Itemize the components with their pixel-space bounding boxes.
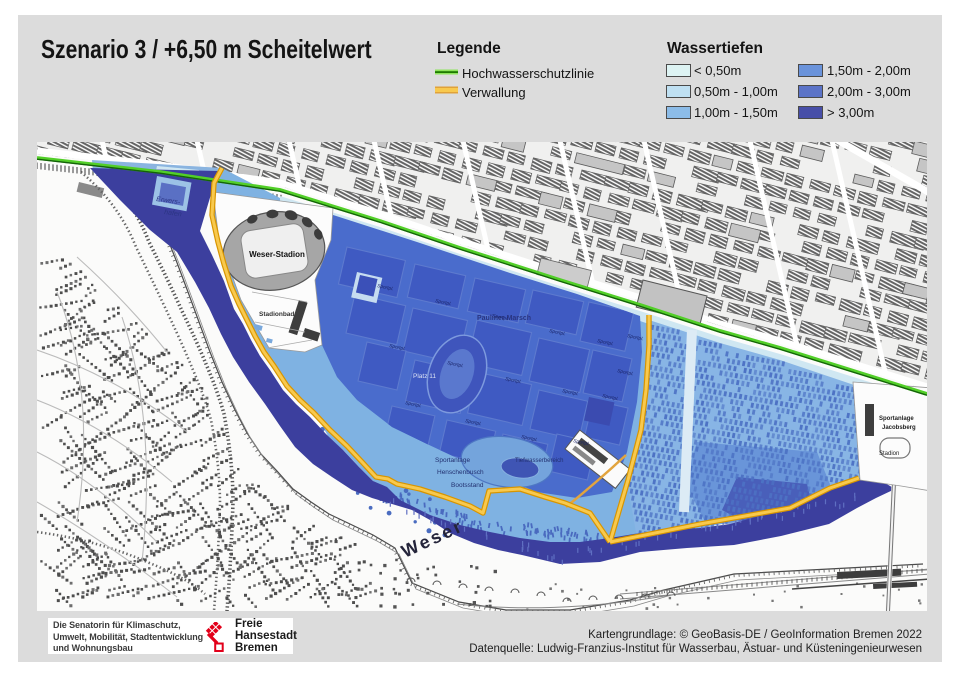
svg-text:Stadion: Stadion — [879, 451, 899, 457]
svg-text:Henschenbusch: Henschenbusch — [437, 469, 484, 476]
svg-text:Weser-Stadion: Weser-Stadion — [249, 250, 305, 259]
svg-text:Sportanlage: Sportanlage — [879, 416, 914, 422]
svg-text:Sportanlage: Sportanlage — [435, 457, 470, 464]
svg-text:Stadionbad: Stadionbad — [259, 311, 294, 318]
svg-text:Jacobsberg: Jacobsberg — [882, 425, 916, 431]
svg-text:Bootsstand: Bootsstand — [451, 482, 484, 489]
svg-text:Tiefwasserbereich: Tiefwasserbereich — [515, 458, 563, 464]
svg-text:Platz 11: Platz 11 — [413, 373, 436, 380]
